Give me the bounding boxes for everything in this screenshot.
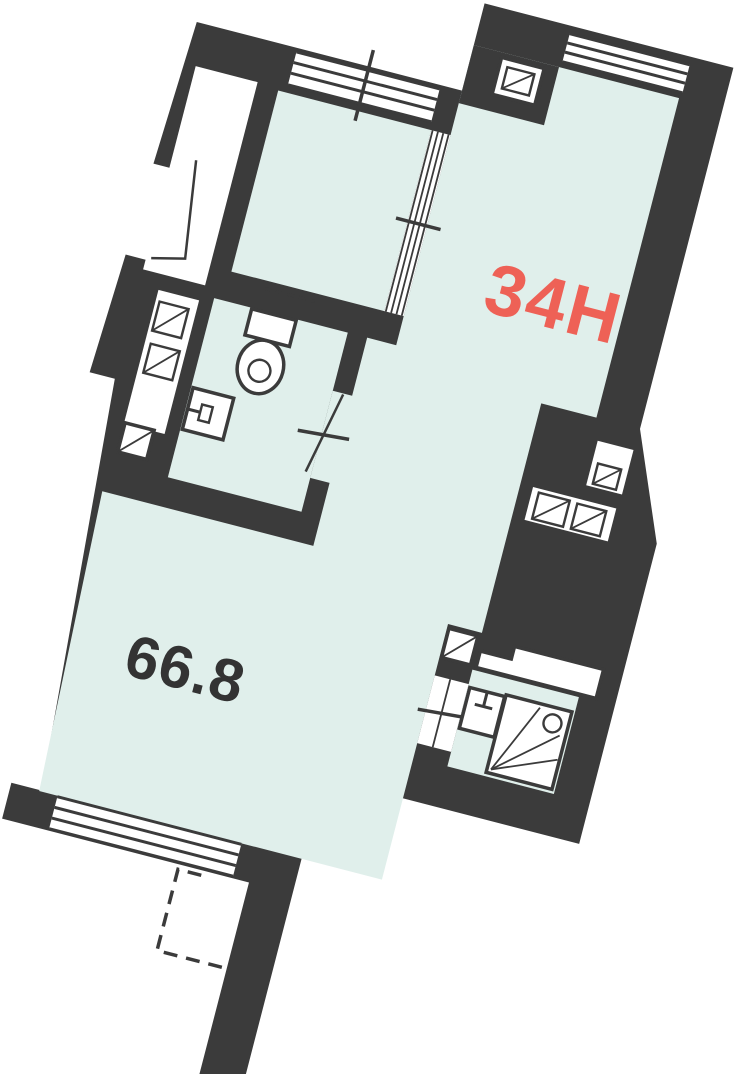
sink-icon xyxy=(182,388,233,440)
floorplan-canvas: 34H 66.8 xyxy=(0,0,742,1074)
vent-shaft-living-icon xyxy=(118,423,155,460)
floorplan-svg: 34H 66.8 xyxy=(0,0,742,1074)
vent-shaft-bath2-icon xyxy=(441,628,478,665)
plan-rotated-group: 34H 66.8 xyxy=(0,0,742,1074)
